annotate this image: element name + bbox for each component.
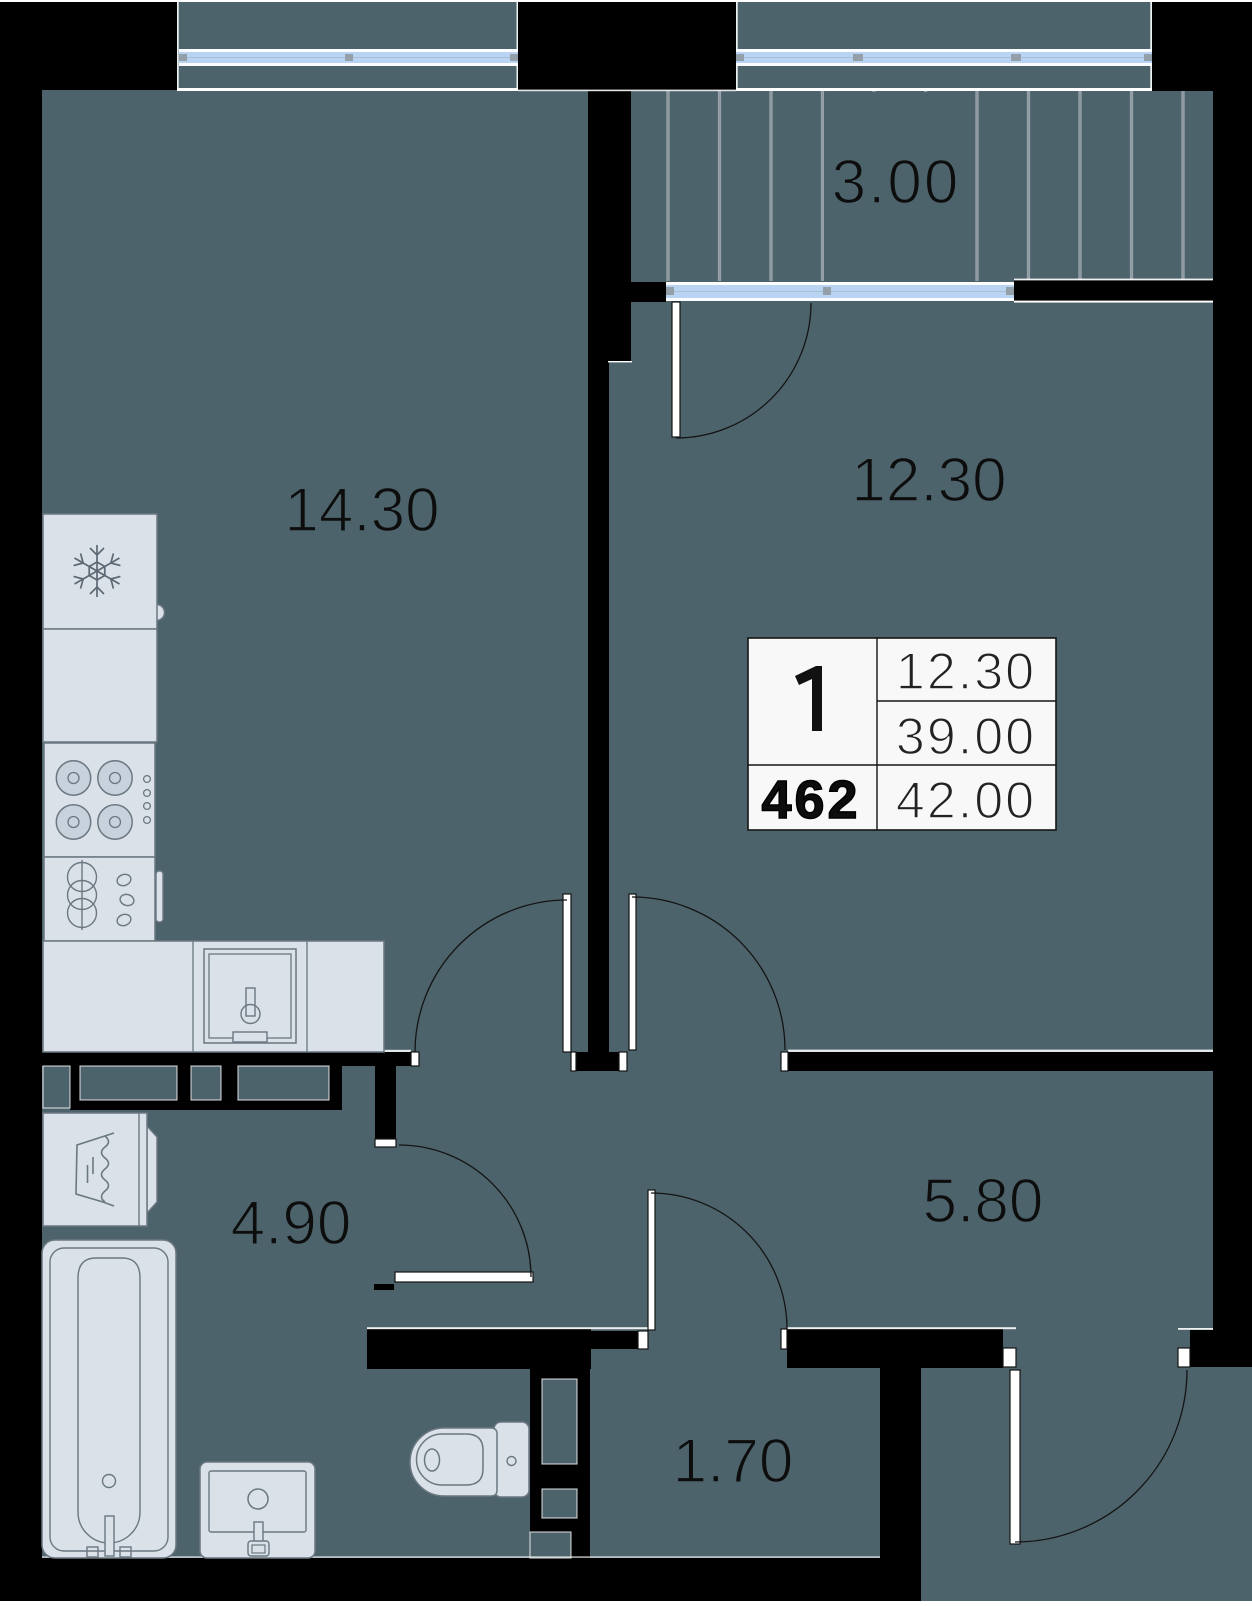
svg-text:42.00: 42.00	[896, 772, 1036, 830]
svg-text:12.30: 12.30	[896, 643, 1036, 701]
svg-text:3.00: 3.00	[832, 148, 961, 217]
svg-text:39.00: 39.00	[896, 708, 1036, 766]
svg-text:12.30: 12.30	[851, 446, 1006, 515]
svg-text:1.70: 1.70	[673, 1427, 794, 1496]
svg-text:5.80: 5.80	[923, 1167, 1044, 1236]
svg-text:14.30: 14.30	[284, 476, 439, 545]
svg-text:4.90: 4.90	[231, 1189, 352, 1258]
svg-text:462: 462	[761, 770, 860, 830]
